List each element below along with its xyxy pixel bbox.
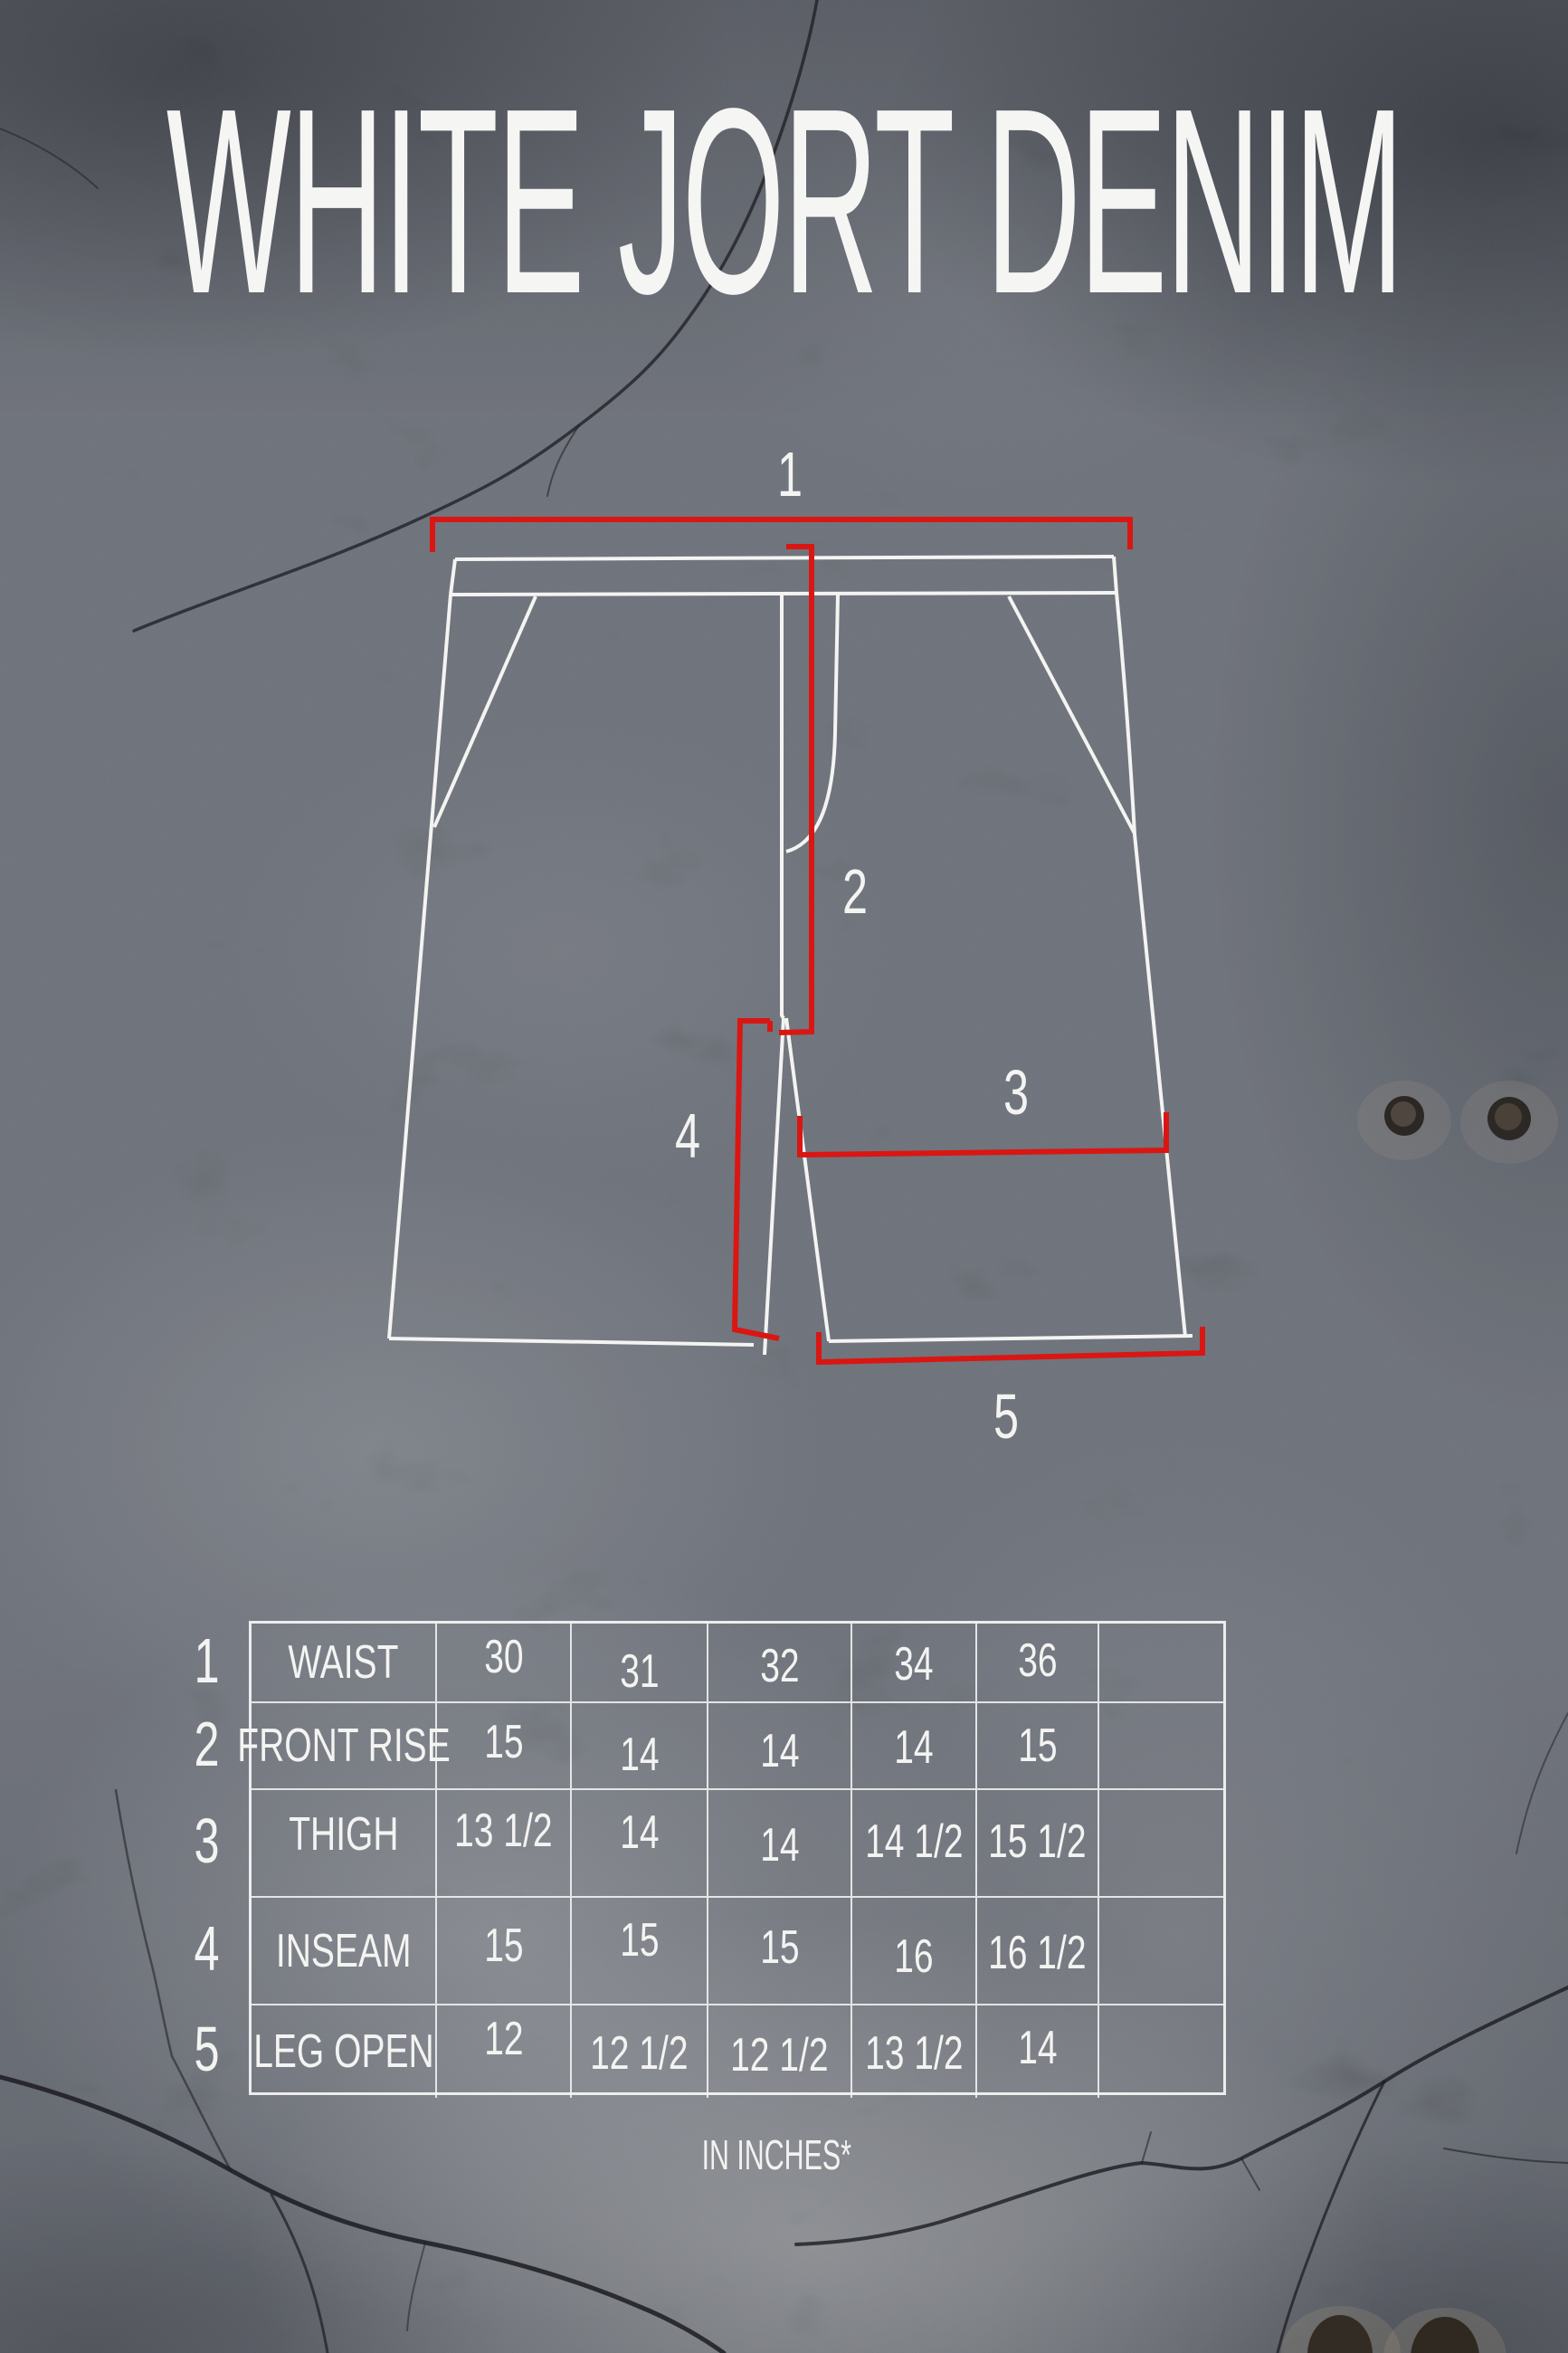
size-value-cell-empty — [1099, 2005, 1223, 2098]
right-inner-seam — [786, 1018, 829, 1341]
right-hem — [829, 1336, 1193, 1341]
size-value-cell: 15 — [437, 1703, 572, 1790]
left-outer-seam — [389, 595, 451, 1338]
row-label: LEG OPEN — [253, 2028, 433, 2075]
size-value-cell: 14 — [572, 1790, 708, 1898]
table-row-number-3: 3 — [168, 1809, 244, 1872]
diagram-marker-2-label: 2 — [842, 860, 868, 923]
size-value: 15 — [620, 1917, 659, 1964]
units-footnote: IN INCHES* — [595, 2134, 957, 2176]
size-value-cell-empty — [1099, 1898, 1223, 2005]
size-value: 14 — [620, 1731, 659, 1778]
right-pocket-opening — [1009, 596, 1135, 834]
row-label: INSEAM — [276, 1928, 412, 1975]
crack-bottom-right-branch — [1142, 2132, 1259, 2190]
measure-line-front-rise — [779, 547, 812, 1033]
row-number-label: 2 — [194, 1712, 219, 1776]
size-value: 14 — [760, 1822, 799, 1869]
left-pocket-opening — [434, 596, 536, 827]
size-value-cell: 14 — [977, 2005, 1099, 2098]
size-value-cell: 12 1/2 — [572, 2005, 708, 2098]
size-value-cell: 15 — [708, 1898, 852, 2005]
shorts-outline — [389, 557, 1193, 1355]
waistband-right-edge — [1114, 557, 1117, 593]
size-value: 15 — [484, 1719, 523, 1766]
size-value: 15 — [760, 1924, 799, 1971]
diagram-marker-1: 1 — [773, 443, 808, 506]
crack-bottom-left-branch2 — [407, 2243, 425, 2330]
diagram-marker-1-label: 1 — [777, 443, 803, 506]
size-value-cell-empty — [1099, 1790, 1223, 1898]
size-value-cell: 30 — [437, 1624, 572, 1703]
row-label-cell: INSEAM — [252, 1898, 437, 2005]
row-number-label: 5 — [194, 2017, 219, 2081]
measurement-lines — [432, 519, 1202, 1362]
size-value-cell: 32 — [708, 1624, 852, 1703]
size-value-cell-empty — [1099, 1703, 1223, 1790]
size-value: 16 — [894, 1933, 933, 1980]
size-value: 32 — [760, 1643, 799, 1690]
bolt-hole-inner — [1391, 1101, 1416, 1127]
left-hem — [389, 1338, 754, 1345]
waistband-bottom — [451, 593, 1116, 595]
right-outer-seam — [1117, 593, 1185, 1337]
size-value: 15 1/2 — [988, 1818, 1086, 1865]
size-value-cell: 31 — [572, 1624, 708, 1703]
waistband-left-edge — [451, 559, 455, 595]
size-value: 34 — [894, 1641, 933, 1688]
size-value-cell: 14 — [572, 1703, 708, 1790]
row-label: THIGH — [289, 1811, 398, 1858]
photographer-shoe-toes — [1281, 2306, 1506, 2353]
size-value-cell: 15 — [572, 1898, 708, 2005]
size-value-cell: 14 — [708, 1703, 852, 1790]
size-value: 14 1/2 — [865, 1818, 963, 1865]
size-value-cell: 12 — [437, 2005, 572, 2098]
diagram-marker-5: 5 — [989, 1385, 1024, 1448]
waistband-top — [455, 557, 1114, 559]
row-label-cell: THIGH — [252, 1790, 437, 1898]
diagram-marker-3: 3 — [999, 1061, 1034, 1124]
size-value-cell-empty — [1099, 1624, 1223, 1703]
size-value: 14 — [1018, 2024, 1057, 2072]
size-value-cell: 14 — [708, 1790, 852, 1898]
row-label-cell: WAIST — [252, 1624, 437, 1703]
size-value-cell: 36 — [977, 1624, 1099, 1703]
row-label: FRONT RISE — [237, 1722, 450, 1769]
row-number-label: 3 — [194, 1809, 219, 1872]
size-value: 15 — [484, 1922, 523, 1969]
size-value-cell: 15 — [977, 1703, 1099, 1790]
size-value: 14 — [760, 1728, 799, 1775]
row-label-cell: LEG OPEN — [252, 2005, 437, 2098]
size-value-cell: 13 1/2 — [437, 1790, 572, 1898]
crack-bottom-left-branch — [271, 2195, 328, 2353]
left-inner-seam — [765, 1018, 784, 1355]
fly-center-line — [782, 595, 784, 1018]
size-table: WAIST 30 31 32 34 36 FRONT RISE 15 14 14… — [249, 1621, 1226, 2095]
size-value: 15 — [1018, 1722, 1057, 1769]
diagram-marker-5-label: 5 — [993, 1385, 1019, 1448]
size-value: 12 1/2 — [590, 2030, 688, 2077]
size-value-cell: 14 — [852, 1703, 977, 1790]
size-value: 36 — [1018, 1637, 1057, 1684]
diagram-marker-2: 2 — [838, 860, 873, 923]
size-value: 13 1/2 — [454, 1807, 552, 1854]
diagram-marker-4: 4 — [670, 1104, 706, 1167]
page-title-text: WHITE JORT DENIM — [166, 69, 1402, 333]
table-row-number-5: 5 — [168, 2017, 244, 2081]
size-value-cell: 16 — [852, 1898, 977, 2005]
size-value: 12 1/2 — [730, 2032, 828, 2079]
size-value-cell: 34 — [852, 1624, 977, 1703]
size-value: 30 — [484, 1634, 523, 1681]
size-value-cell: 13 1/2 — [852, 2005, 977, 2098]
measure-line-leg-open — [819, 1327, 1202, 1362]
size-value-cell: 12 1/2 — [708, 2005, 852, 2098]
diagram-marker-4-label: 4 — [675, 1104, 700, 1167]
page-title: WHITE JORT DENIM — [0, 65, 1568, 337]
size-value: 14 — [620, 1809, 659, 1856]
measure-line-waist — [432, 519, 1130, 552]
size-value-cell: 14 1/2 — [852, 1790, 977, 1898]
concrete-bolt-holes — [1357, 1081, 1558, 1164]
size-chart-poster: WHITE JORT DENIM 1 2 3 4 5 1 2 3 4 5 WAI… — [0, 0, 1568, 2353]
size-value-cell: 15 — [437, 1898, 572, 2005]
table-row-number-4: 4 — [168, 1917, 244, 1980]
measure-line-thigh — [800, 1112, 1166, 1155]
size-value: 12 — [484, 2015, 523, 2062]
crack-right-edge — [1444, 2148, 1568, 2163]
row-number-label: 1 — [194, 1629, 219, 1692]
measure-line-inseam — [735, 1021, 779, 1338]
size-value: 14 — [894, 1724, 933, 1771]
row-number-label: 4 — [194, 1917, 219, 1980]
diagram-marker-3-label: 3 — [1003, 1061, 1029, 1124]
table-row-number-1: 1 — [168, 1629, 244, 1692]
size-value: 13 1/2 — [865, 2030, 963, 2077]
table-row-number-2: 2 — [168, 1712, 244, 1776]
units-footnote-text: IN INCHES* — [701, 2134, 851, 2176]
row-label: WAIST — [288, 1639, 398, 1686]
crack-right-middle — [1516, 1713, 1568, 1853]
size-value-cell: 15 1/2 — [977, 1790, 1099, 1898]
size-value: 31 — [620, 1648, 659, 1695]
crack-bottom-left-main — [0, 2077, 724, 2353]
size-value-cell: 16 1/2 — [977, 1898, 1099, 2005]
size-value: 16 1/2 — [988, 1929, 1086, 1977]
bolt-hole-inner — [1495, 1103, 1522, 1130]
row-label-cell: FRONT RISE — [252, 1703, 437, 1790]
